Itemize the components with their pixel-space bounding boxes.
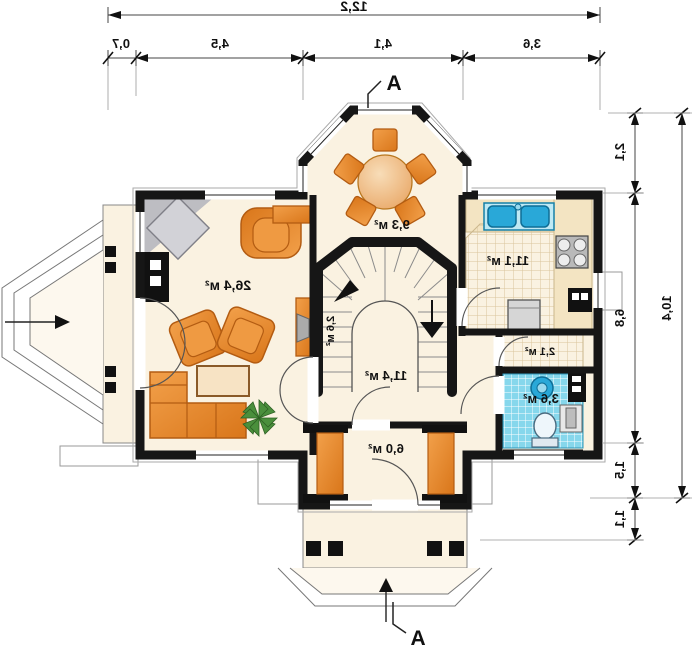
- section-label-a-bottom: A: [410, 627, 425, 649]
- vestibule-area-label: 6,0 м²: [368, 441, 404, 456]
- toilet: [532, 413, 558, 447]
- floor-plan-page: A A 12,2 0,7 4,5 4,1 3,6 2,1 6,8 1,5 1,1…: [0, 0, 700, 649]
- dim-top-seg0: 0,7: [112, 36, 130, 51]
- tv-stand: [296, 298, 311, 356]
- stove: [556, 236, 588, 268]
- kitchen-sink: [484, 203, 554, 230]
- dim-top-seg2: 4,1: [374, 36, 392, 51]
- stairs-area-label: 2,6 м²: [325, 316, 337, 346]
- section-label-a-top: A: [386, 72, 401, 95]
- dining-area-label: 9,3 м²: [374, 217, 410, 232]
- side-table: [273, 206, 310, 223]
- dim-top-seg3: 3,6: [523, 36, 541, 51]
- floor-plan-drawing: A A 12,2 0,7 4,5 4,1 3,6 2,1 6,8 1,5 1,1…: [0, 0, 700, 649]
- kitchen-area-label: 11,1 м²: [486, 253, 529, 268]
- dining-chair: [373, 129, 397, 151]
- bathroom-area-label: 3,6 м²: [523, 391, 559, 406]
- kitchen-side-step: [600, 272, 622, 310]
- dim-right-seg2: 1,5: [612, 461, 627, 479]
- water-heater: [560, 405, 582, 432]
- tv: [297, 314, 309, 342]
- dim-right-seg0: 2,1: [612, 143, 627, 161]
- dim-top-seg1: 4,5: [211, 36, 229, 51]
- living-room-area-label: 26,4 м²: [205, 277, 251, 293]
- hall-area-label: 11,4 м²: [364, 368, 407, 383]
- coffee-table: [197, 366, 249, 396]
- fridge: [508, 300, 540, 330]
- terrace-step-south: [60, 446, 138, 466]
- bathroom: [503, 372, 586, 448]
- wardrobe: [428, 433, 454, 494]
- dim-right-total: 10,4: [659, 295, 674, 321]
- bathroom-duct: [568, 372, 586, 402]
- wardrobe: [317, 433, 343, 494]
- dim-right-seg1: 6,8: [612, 309, 627, 327]
- kitchen-chimney-duct: [568, 288, 592, 312]
- dim-right-seg3: 1,1: [612, 510, 627, 528]
- side-landing-left: [258, 458, 303, 504]
- dim-top-total: 12,2: [340, 0, 367, 14]
- pantry-area-label: 2,1 м²: [525, 346, 555, 358]
